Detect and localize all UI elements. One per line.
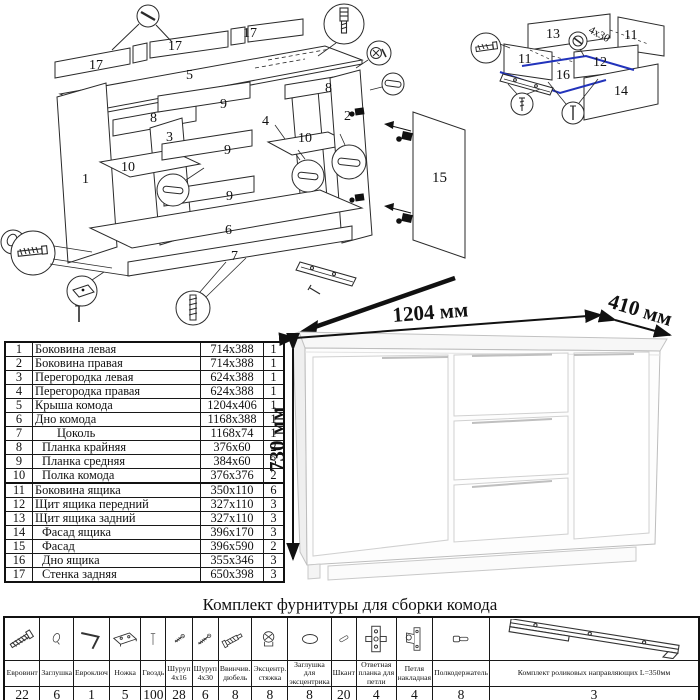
parts-table-row: 15Фасад396x5902	[5, 540, 284, 554]
part-label: 13	[546, 27, 560, 42]
parts-cell-size: 396x590	[201, 540, 264, 554]
parts-table-row: 1Боковина левая714x3881	[5, 342, 284, 357]
hardware-label: Заглушка	[40, 661, 74, 687]
hinge-plate-icon	[359, 619, 393, 659]
hardware-label: Полкодержатель	[433, 661, 490, 687]
parts-cell-num: 12	[5, 498, 33, 512]
part-label: 7	[231, 249, 238, 264]
hardware-label: Ответная планка для петли	[356, 661, 396, 687]
parts-cell-size: 376x60	[201, 441, 264, 455]
parts-cell-size: 355x346	[201, 554, 264, 568]
part-label: 2	[344, 109, 351, 124]
product-render: 1204 мм 410 мм 730 мм	[262, 282, 698, 598]
parts-cell-size: 1168x388	[201, 413, 264, 427]
parts-cell-name: Дно комода	[33, 413, 201, 427]
parts-cell-qty: 1	[264, 427, 285, 441]
hardware-label: Шуруп 4x30	[192, 661, 218, 687]
parts-cell-num: 5	[5, 399, 33, 413]
parts-cell-num: 9	[5, 455, 33, 469]
part-label: 5	[186, 68, 193, 83]
hardware-qty: 4	[356, 687, 396, 700]
parts-cell-qty: 2	[264, 441, 285, 455]
parts-cell-qty: 2	[264, 540, 285, 554]
parts-cell-qty: 3	[264, 526, 285, 540]
left-door	[313, 355, 448, 556]
parts-table: 1Боковина левая714x38812Боковина правая7…	[4, 341, 285, 583]
hardware-qty-row: 22 6 1 5 100 28 6 8 8 8 20 4 4 8 3	[4, 687, 699, 700]
parts-cell-num: 2	[5, 357, 33, 371]
hardware-label: Петля накладная	[396, 661, 432, 687]
hardware-qty: 22	[4, 687, 40, 700]
parts-cell-num: 17	[5, 568, 33, 583]
part-label: 16	[556, 68, 570, 83]
hex-key-icon	[76, 620, 106, 658]
parts-cell-name: Перегородка правая	[33, 385, 201, 399]
screw-dowel-icon	[220, 620, 250, 658]
hardware-qty: 1	[74, 687, 110, 700]
hardware-kit-title: Комплект фурнитуры для сборки комода	[0, 595, 700, 615]
parts-table-row: 2Боковина правая714x3881	[5, 357, 284, 371]
parts-cell-size: 714x388	[201, 357, 264, 371]
drawer-front-2	[454, 416, 568, 480]
parts-cell-qty: 1	[264, 385, 285, 399]
drawer-front-3	[454, 478, 568, 542]
parts-cell-name: Цоколь	[33, 427, 201, 441]
hardware-qty: 8	[288, 687, 331, 700]
foot-icon	[110, 620, 140, 658]
part-label: 17	[168, 39, 182, 54]
parts-cell-num: 4	[5, 385, 33, 399]
euro-screw-icon	[5, 620, 39, 658]
part-label: 9	[224, 143, 231, 158]
parts-cell-qty: 3	[264, 498, 285, 512]
part-label: 11	[624, 28, 637, 43]
parts-cell-num: 16	[5, 554, 33, 568]
nail-icon	[144, 620, 162, 658]
parts-table-row: 16Дно ящика355x3463	[5, 554, 284, 568]
dresser-body	[293, 332, 667, 580]
parts-cell-num: 11	[5, 483, 33, 498]
hardware-label: Эксцентр. стяжка	[252, 661, 288, 687]
parts-table-row: 13Щит ящика задний327x1103	[5, 512, 284, 526]
parts-cell-num: 7	[5, 427, 33, 441]
parts-cell-size: 1204x406	[201, 399, 264, 413]
part-label: 8	[325, 81, 332, 96]
parts-cell-qty: 1	[264, 413, 285, 427]
drawer-slides-icon	[494, 619, 694, 659]
parts-cell-qty: 2	[264, 469, 285, 484]
parts-table-row: 8Планка крайняя376x602	[5, 441, 284, 455]
hardware-label: Шуруп 4x16	[166, 661, 192, 687]
parts-cell-name: Щит ящика передний	[33, 498, 201, 512]
hardware-qty: 4	[396, 687, 432, 700]
parts-cell-qty: 1	[264, 357, 285, 371]
parts-cell-name: Планка крайняя	[33, 441, 201, 455]
cam-cap-icon	[295, 620, 325, 658]
parts-cell-size: 1168x74	[201, 427, 264, 441]
hardware-label: Гвоздь	[141, 661, 166, 687]
parts-cell-qty: 1	[264, 342, 285, 357]
dowel-icon	[334, 620, 354, 658]
parts-table-row: 11Боковина ящика350x1106	[5, 483, 284, 498]
hardware-qty: 28	[166, 687, 192, 700]
parts-table-row: 6Дно комода1168x3881	[5, 413, 284, 427]
parts-cell-qty: 3	[264, 568, 285, 583]
parts-cell-size: 327x110	[201, 512, 264, 526]
parts-cell-num: 8	[5, 441, 33, 455]
parts-cell-size: 624x388	[201, 385, 264, 399]
cap-icon	[45, 620, 69, 658]
hardware-qty: 20	[331, 687, 356, 700]
parts-cell-num: 14	[5, 526, 33, 540]
parts-cell-qty: 3	[264, 554, 285, 568]
part-label: 9	[220, 97, 227, 112]
part-label: 14	[614, 84, 628, 99]
parts-table-row: 17Стенка задняя650x3983	[5, 568, 284, 583]
assembly-instruction-sheet: 17 17 17 5 8 8 9 9 9 1 2 3 4 10 10 6 7 1…	[0, 0, 700, 700]
shelf-pin-icon	[447, 620, 475, 658]
parts-cell-num: 10	[5, 469, 33, 484]
parts-table-row: 9Планка средняя384x603	[5, 455, 284, 469]
part-label: 4	[262, 114, 269, 129]
parts-cell-size: 327x110	[201, 498, 264, 512]
parts-cell-num: 3	[5, 371, 33, 385]
parts-table-row: 3Перегородка левая624x3881	[5, 371, 284, 385]
part-label: 6	[225, 223, 232, 238]
parts-cell-qty: 1	[264, 371, 285, 385]
parts-cell-size: 624x388	[201, 371, 264, 385]
parts-table-row: 4Перегородка правая624x3881	[5, 385, 284, 399]
hardware-qty: 6	[40, 687, 74, 700]
hardware-qty: 3	[489, 687, 699, 700]
parts-cell-size: 384x60	[201, 455, 264, 469]
hardware-qty: 100	[141, 687, 166, 700]
depth-dimension: 410 мм	[606, 289, 676, 331]
hardware-qty: 5	[109, 687, 140, 700]
hardware-labels-row: Евровинт Заглушка Евроключ Ножка Гвоздь …	[4, 661, 699, 687]
parts-cell-name: Боковина правая	[33, 357, 201, 371]
part-label: 17	[243, 26, 257, 41]
parts-cell-name: Полка комода	[33, 469, 201, 484]
parts-cell-size: 396x170	[201, 526, 264, 540]
width-dimension: 1204 мм	[392, 297, 469, 327]
part-label: 8	[150, 111, 157, 126]
parts-cell-qty: 3	[264, 512, 285, 526]
part-label: 17	[89, 58, 103, 73]
screw-large-icon	[194, 620, 216, 658]
hardware-label: Шкант	[331, 661, 356, 687]
parts-cell-name: Фасад ящика	[33, 526, 201, 540]
part-label: 10	[298, 131, 312, 146]
parts-cell-name: Щит ящика задний	[33, 512, 201, 526]
parts-cell-name: Стенка задняя	[33, 568, 201, 583]
parts-cell-name: Крыша комода	[33, 399, 201, 413]
hardware-label: Евроключ	[74, 661, 110, 687]
parts-cell-num: 15	[5, 540, 33, 554]
parts-cell-size: 650x398	[201, 568, 264, 583]
screw-small-icon	[168, 620, 190, 658]
part-label: 12	[593, 55, 607, 70]
hardware-label: Заглушка для эксцентрика	[288, 661, 331, 687]
hardware-qty: 6	[192, 687, 218, 700]
hardware-label: Ножка	[109, 661, 140, 687]
hinge-icon	[399, 619, 429, 659]
part-label: 9	[226, 189, 233, 204]
hardware-label: Евровинт	[4, 661, 40, 687]
parts-cell-num: 6	[5, 413, 33, 427]
parts-cell-size: 350x110	[201, 483, 264, 498]
part-label: 1	[82, 172, 89, 187]
parts-cell-size: 376x376	[201, 469, 264, 484]
parts-table-row: 14Фасад ящика396x1703	[5, 526, 284, 540]
part-label: 3	[166, 130, 173, 145]
cam-lock-icon	[256, 620, 284, 658]
parts-cell-name: Боковина левая	[33, 342, 201, 357]
hardware-qty: 8	[252, 687, 288, 700]
hardware-qty: 8	[218, 687, 252, 700]
parts-cell-qty: 1	[264, 399, 285, 413]
hardware-label: Ввинчив. дюбель	[218, 661, 252, 687]
parts-cell-qty: 6	[264, 483, 285, 498]
right-door	[574, 352, 649, 539]
parts-cell-name: Боковина ящика	[33, 483, 201, 498]
parts-cell-num: 13	[5, 512, 33, 526]
parts-cell-name: Дно ящика	[33, 554, 201, 568]
parts-cell-size: 714x388	[201, 342, 264, 357]
part-label: 10	[121, 160, 135, 175]
parts-cell-num: 1	[5, 342, 33, 357]
part-label: 11	[518, 52, 531, 67]
parts-table-row: 10Полка комода376x3762	[5, 469, 284, 484]
parts-table-row: 12Щит ящика передний327x1103	[5, 498, 284, 512]
hardware-label: Комплект роликовых направляющих L=350мм	[489, 661, 699, 687]
part-label: 15	[432, 170, 447, 186]
parts-cell-name: Фасад	[33, 540, 201, 554]
parts-cell-name: Перегородка левая	[33, 371, 201, 385]
drawer-front-1	[454, 353, 568, 416]
parts-cell-qty: 3	[264, 455, 285, 469]
hardware-qty: 8	[433, 687, 490, 700]
hardware-table: Евровинт Заглушка Евроключ Ножка Гвоздь …	[3, 616, 700, 700]
parts-cell-name: Планка средняя	[33, 455, 201, 469]
parts-table-row: 7Цоколь1168x741	[5, 427, 284, 441]
parts-table-row: 5Крыша комода1204x4061	[5, 399, 284, 413]
hardware-icons-row	[4, 617, 699, 661]
